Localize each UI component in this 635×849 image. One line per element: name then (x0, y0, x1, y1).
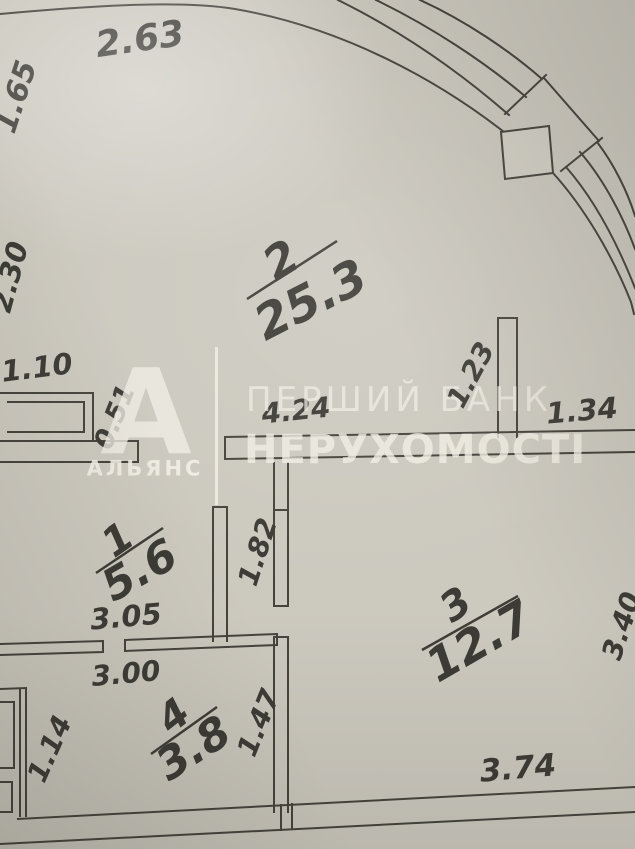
watermark-divider (215, 347, 218, 505)
dim-right-of-stub: 1.34 (545, 393, 619, 428)
watermark-brand-letter: А (100, 353, 191, 471)
floor-plan-photo: 2 25.3 1 5.6 3 12.7 4 3.8 2.63 1.65 2.30… (0, 0, 635, 849)
glazing-chord (544, 78, 599, 141)
corridor-left-wall (213, 507, 227, 641)
room1-room4-divider-wall (0, 634, 277, 655)
column (501, 126, 553, 179)
window-symbol (0, 393, 93, 441)
watermark-brand-name: АЛЬЯНС (87, 459, 204, 480)
glazing-divider-tick (561, 138, 602, 171)
bottom-wall (0, 787, 635, 844)
watermark-line1: ПЕРШИЙ БАНК (246, 383, 552, 417)
dim-room1-width: 3.05 (89, 599, 163, 634)
closet (0, 688, 26, 816)
dim-window-left: 1.10 (0, 349, 74, 387)
dim-room4-width: 3.00 (90, 657, 161, 691)
dim-room3-bottom: 3.74 (479, 750, 558, 788)
watermark-line2: НЕРУХОМОСТІ (244, 430, 586, 470)
glazing-divider-tick (505, 75, 546, 114)
